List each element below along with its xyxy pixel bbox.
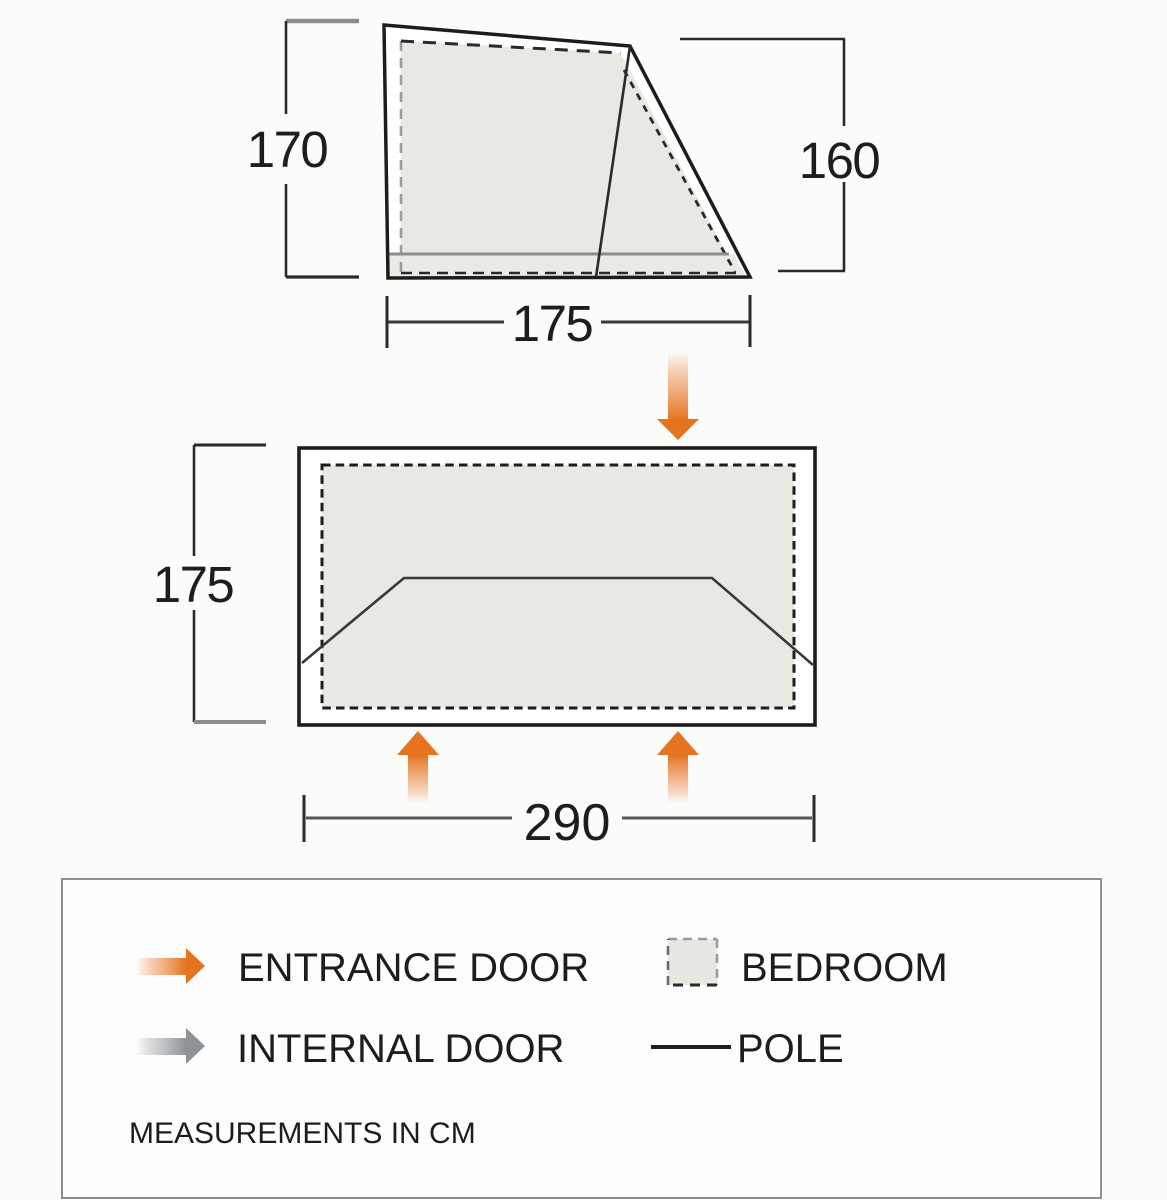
svg-text:170: 170 <box>247 121 328 178</box>
svg-text:175: 175 <box>512 295 593 352</box>
svg-text:INTERNAL DOOR: INTERNAL DOOR <box>237 1027 564 1071</box>
svg-text:BEDROOM: BEDROOM <box>741 946 948 990</box>
svg-text:MEASUREMENTS IN CM: MEASUREMENTS IN CM <box>129 1117 476 1150</box>
svg-text:POLE: POLE <box>737 1027 844 1071</box>
svg-text:175: 175 <box>153 556 234 613</box>
svg-text:290: 290 <box>524 794 611 852</box>
svg-text:ENTRANCE DOOR: ENTRANCE DOOR <box>238 946 589 990</box>
svg-text:160: 160 <box>799 132 880 189</box>
